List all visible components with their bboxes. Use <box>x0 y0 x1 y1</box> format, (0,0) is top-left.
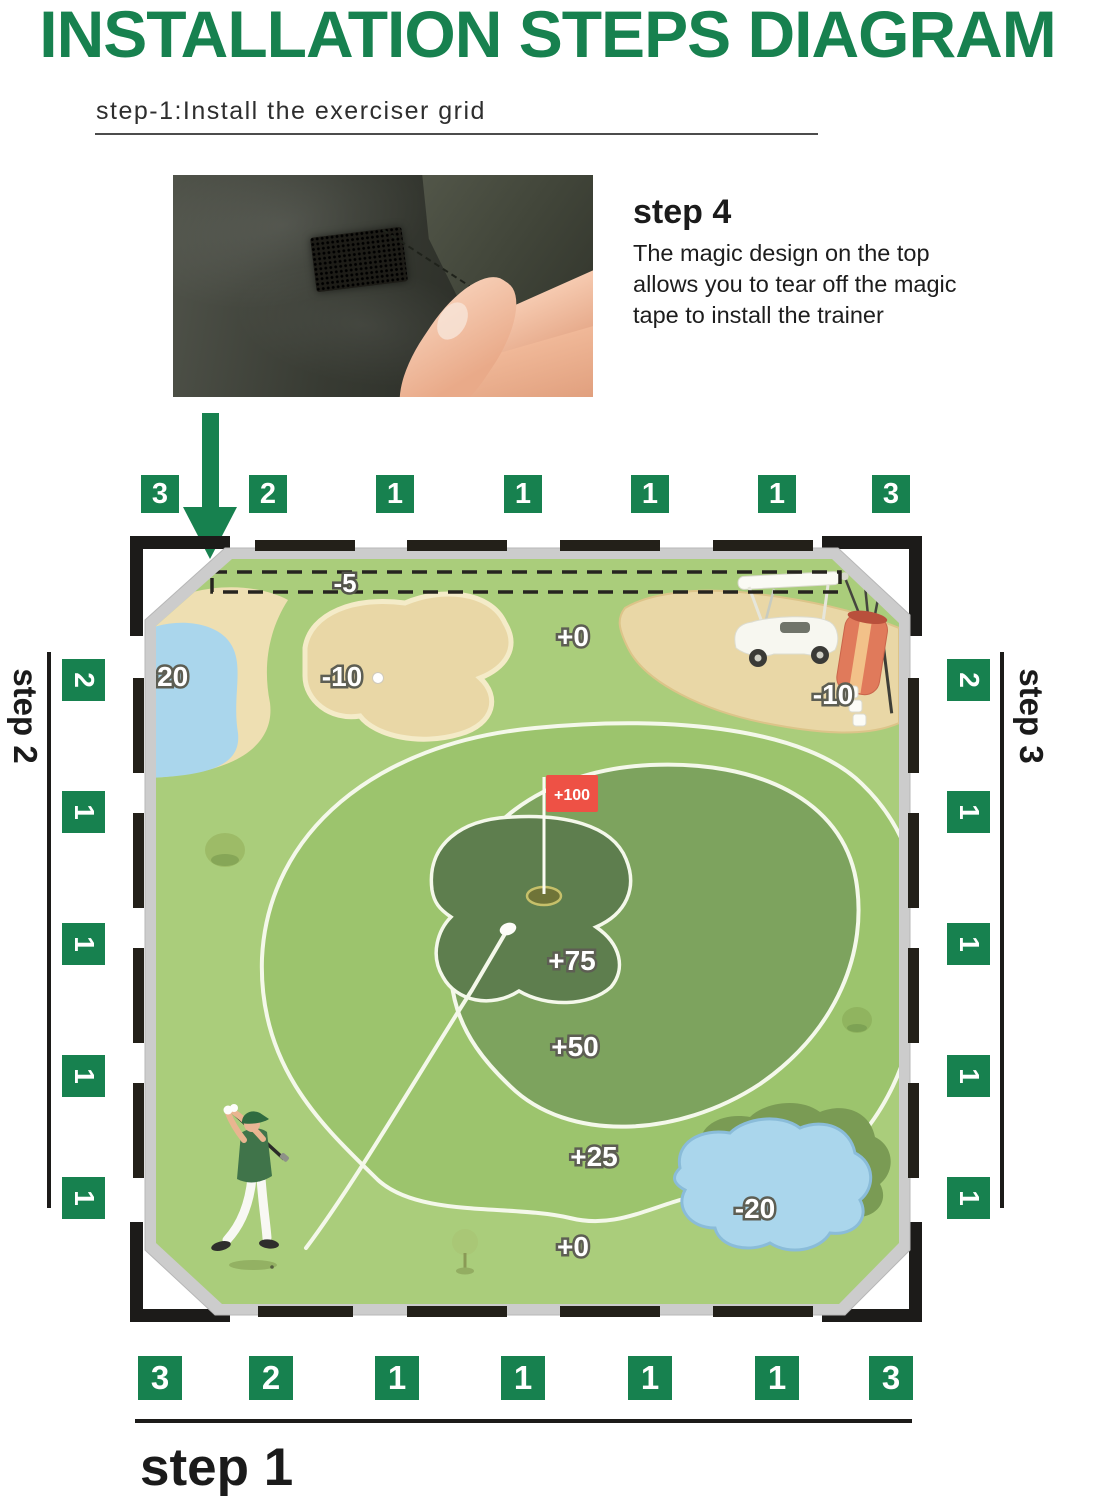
grid-tab-bottom: 3 <box>138 1356 182 1400</box>
grid-tab-right: 1 <box>947 1055 990 1097</box>
grid-tab-top: 1 <box>504 475 542 513</box>
grid-tab-top: 3 <box>872 475 910 513</box>
grid-tab-left: 1 <box>62 791 105 833</box>
tree <box>205 833 245 867</box>
zone-label-plus100: +100 <box>554 787 590 804</box>
grid-tab-bottom: 1 <box>755 1356 799 1400</box>
grid-tab-left: 2 <box>62 659 105 701</box>
grid-tab-right: 2 <box>947 659 990 701</box>
grid-tab-left: 1 <box>62 923 105 965</box>
step1-caption: step-1:Install the exerciser grid <box>96 97 486 126</box>
step1-line <box>135 1419 912 1423</box>
step2-label: step 2 <box>6 656 44 776</box>
tree <box>842 1007 872 1033</box>
zone-label-plus0-top: +0 <box>557 621 589 652</box>
grid-tab-bottom: 3 <box>869 1356 913 1400</box>
grid-tab-top: 1 <box>376 475 414 513</box>
grid-tab-bottom: 1 <box>628 1356 672 1400</box>
zone-label-minus5: -5 <box>333 568 356 598</box>
grid-tab-bottom: 1 <box>375 1356 419 1400</box>
water-hazard-left <box>145 623 238 778</box>
zone-label-minus10-bunker: -10 <box>322 661 362 692</box>
down-arrow-icon <box>202 413 219 509</box>
page-title: INSTALLATION STEPS DIAGRAM <box>0 0 1095 72</box>
step4-heading: step 4 <box>633 193 731 232</box>
step3-label: step 3 <box>1012 656 1050 776</box>
grid-tab-left: 1 <box>62 1055 105 1097</box>
grid-tab-right: 1 <box>947 923 990 965</box>
golf-ball-bunker <box>373 673 384 684</box>
zone-label-minus10-right: -10 <box>813 679 853 710</box>
zone-label-minus20-right: -20 <box>735 1193 775 1224</box>
step4-description: The magic design on the top allows you t… <box>633 238 991 331</box>
page: INSTALLATION STEPS DIAGRAM step-1:Instal… <box>0 0 1095 1500</box>
zone-label-plus0-bottom: +0 <box>557 1231 589 1262</box>
zone-plus75 <box>431 816 630 1002</box>
grid-tab-top: 1 <box>758 475 796 513</box>
grid-tab-bottom: 2 <box>249 1356 293 1400</box>
grid-tab-top: 3 <box>141 475 179 513</box>
step2-line <box>47 652 51 1208</box>
grid-tab-right: 1 <box>947 1177 990 1219</box>
grid-tab-top: 1 <box>631 475 669 513</box>
zone-label-plus25: +25 <box>570 1141 618 1172</box>
grid-tab-right: 1 <box>947 791 990 833</box>
caption-underline <box>95 133 818 135</box>
grid-tab-bottom: 1 <box>501 1356 545 1400</box>
grid-tab-top: 2 <box>249 475 287 513</box>
step3-line <box>1000 652 1004 1208</box>
golf-mat-diagram: +100 -5 -20 -10 +0 -10 +75 +50 +25 +0 -2… <box>120 528 932 1328</box>
step1-label: step 1 <box>140 1437 293 1498</box>
velcro-photo <box>173 175 593 397</box>
zone-label-plus50: +50 <box>551 1031 599 1062</box>
zone-label-plus75: +75 <box>548 945 596 976</box>
grid-tab-left: 1 <box>62 1177 105 1219</box>
